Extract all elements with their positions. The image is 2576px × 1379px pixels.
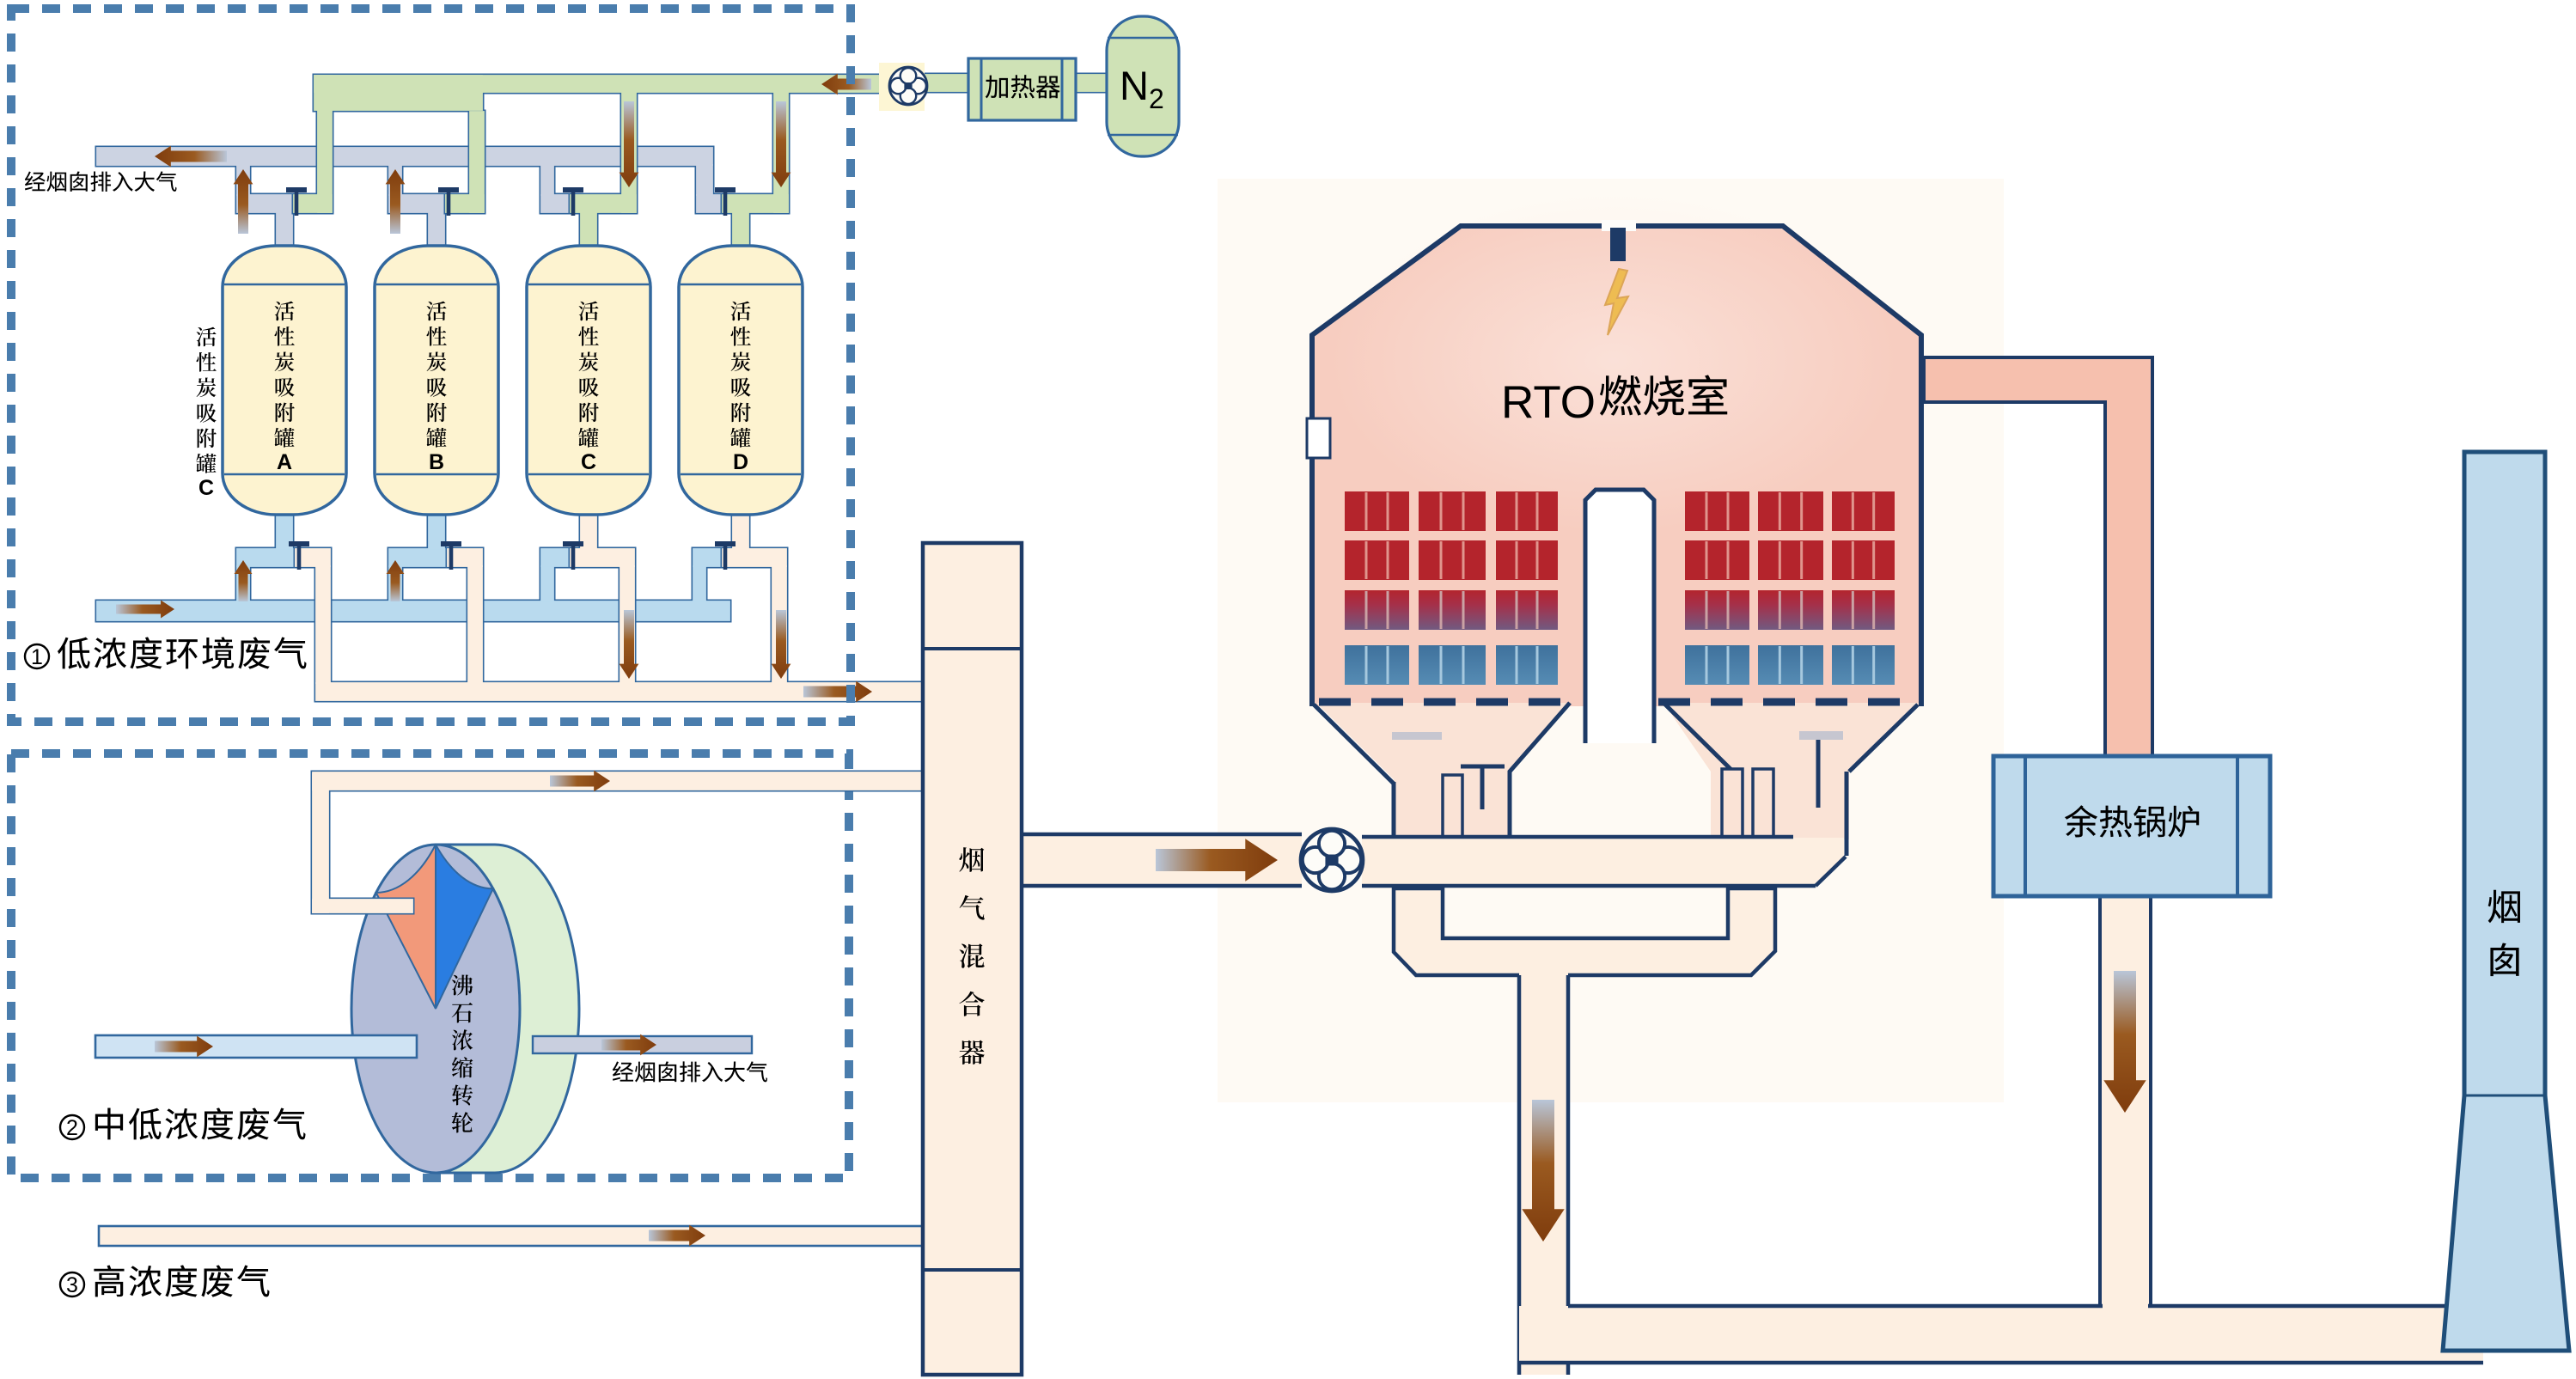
svg-text:2: 2 <box>66 1116 78 1140</box>
svg-text:3: 3 <box>66 1273 78 1297</box>
svg-text:A: A <box>277 450 292 474</box>
svg-text:B: B <box>429 450 444 474</box>
svg-text:D: D <box>733 450 748 474</box>
svg-text:C: C <box>581 450 596 474</box>
svg-text:RTO: RTO <box>1501 377 1596 428</box>
svg-text:C: C <box>198 476 214 500</box>
svg-text:1: 1 <box>31 645 43 669</box>
